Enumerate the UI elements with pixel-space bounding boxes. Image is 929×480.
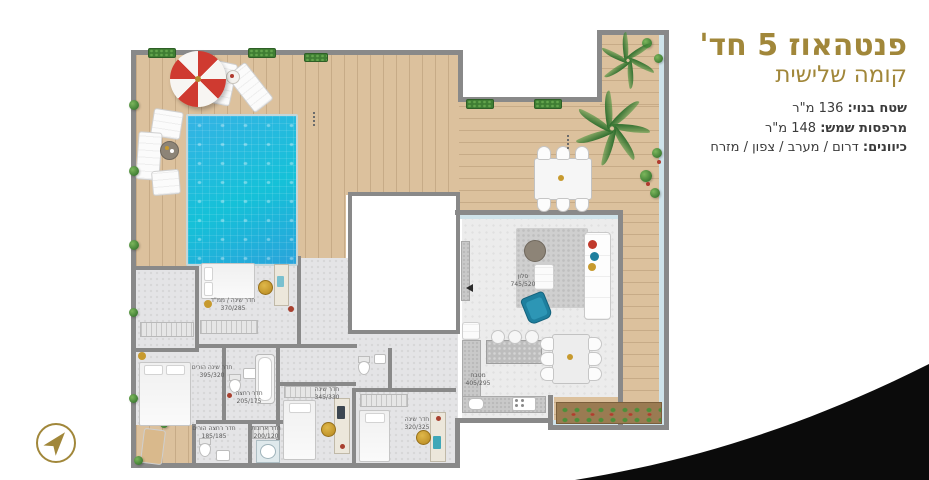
outdoor-chair (575, 146, 589, 160)
apartment-details: שטח בנוי: 136 מ"ר מרפסות שמש: 148 מ"ר כי… (699, 99, 907, 158)
outdoor-chair (556, 198, 570, 212)
throw-pillow (590, 252, 599, 261)
page: סלון745/520 מטבח405/295 חדר שינה / ממ"ד3… (0, 0, 929, 480)
page-title: פנטהאוז 5 חד' (699, 30, 907, 62)
room-label-bathroom: חדר רחצה205/175 (235, 390, 262, 406)
bar-stool (508, 330, 522, 344)
flower (646, 182, 650, 186)
wardrobe (360, 394, 408, 407)
bar-stool (491, 330, 505, 344)
bush (129, 394, 138, 403)
desk-chair (321, 422, 336, 437)
wall (597, 30, 669, 35)
bush (129, 240, 139, 250)
wall (455, 418, 553, 423)
single-bed (359, 410, 390, 462)
wall (196, 420, 296, 424)
bath-accent (227, 393, 232, 398)
flower (657, 160, 661, 164)
swimming-pool (186, 114, 298, 266)
bush (129, 100, 139, 110)
wall (455, 210, 623, 215)
stair-core (348, 192, 460, 334)
entrance-arrow (466, 284, 473, 292)
wall (131, 266, 197, 270)
kitchen-counter-left (462, 340, 481, 400)
header: פנטהאוז 5 חד' קומה שלישית שטח בנוי: 136 … (699, 30, 907, 158)
dimension-mark (567, 135, 569, 149)
page-subtitle: קומה שלישית (699, 62, 907, 90)
room-label-bedroom-3: חדר שינה345/330 (315, 386, 340, 402)
wall (131, 463, 460, 468)
fridge (462, 322, 480, 340)
room-label-living: סלון745/520 (511, 273, 536, 289)
burner (521, 399, 524, 402)
outdoor-chair (537, 146, 551, 160)
wall (297, 256, 301, 348)
computer-monitor (433, 436, 441, 449)
dimension-mark (313, 112, 315, 126)
throw-pillow (588, 263, 596, 271)
wall (352, 388, 356, 464)
bar-stool (525, 330, 539, 344)
centerpiece (558, 175, 564, 181)
wood-lounger (140, 428, 166, 465)
room-label-master-bathroom: חדר רחצה הורים185/185 (192, 425, 235, 441)
wall (131, 50, 463, 55)
dining-chair (588, 337, 602, 351)
table-item (170, 149, 174, 153)
dining-chair (540, 337, 554, 351)
bush (129, 308, 138, 317)
room-label-closet: חדר ארונות200/120 (251, 425, 281, 441)
outdoor-chair (575, 198, 589, 212)
wall (458, 50, 463, 102)
shower (256, 440, 280, 463)
table-item (230, 74, 234, 78)
table-item (165, 146, 169, 150)
bush (129, 166, 139, 176)
burner (521, 404, 524, 407)
bush (134, 456, 143, 465)
room-label-master-bedroom: חדר שינה הורים395/320 (192, 364, 233, 380)
wall (131, 50, 136, 468)
wardrobe (200, 320, 258, 334)
throw-pillow (588, 240, 597, 249)
living-window-band (460, 215, 618, 219)
bush (650, 188, 660, 198)
detail-balconies: מרפסות שמש: 148 מ"ר (699, 119, 907, 139)
hedge-planter (148, 48, 176, 58)
bush (640, 170, 652, 182)
parasol (170, 51, 226, 107)
wardrobe (140, 322, 194, 337)
desk-lamp (436, 416, 441, 421)
room-label-bedroom-4: חדר שינה320/325 (405, 416, 430, 432)
corner-swoosh (549, 360, 929, 480)
desk-chair (258, 280, 273, 295)
master-bed (139, 362, 191, 426)
hedge-planter (466, 99, 494, 109)
desk-lamp (340, 444, 345, 449)
outdoor-chair (537, 198, 551, 212)
pouf (138, 352, 146, 360)
bush (652, 148, 662, 158)
double-bed (201, 263, 255, 299)
room-label-mamad: חדר שינה / ממ"ד370/285 (211, 297, 255, 313)
tv-unit (461, 241, 470, 301)
wall (455, 418, 460, 468)
detail-built-area: שטח בנוי: 136 מ"ר (699, 99, 907, 119)
wall (222, 348, 226, 423)
bush (654, 54, 663, 63)
lounge-chair (151, 169, 181, 196)
wall (352, 388, 456, 392)
hedge-planter (248, 48, 276, 58)
desk-chair (416, 430, 431, 445)
laptop (277, 276, 284, 287)
burner (515, 399, 518, 402)
computer-monitor (337, 406, 345, 419)
burner (515, 404, 518, 407)
room-label-kitchen: מטבח405/295 (466, 372, 491, 388)
bathroom-sink (216, 450, 230, 461)
hedge-planter (534, 99, 562, 109)
coffee-table (524, 240, 546, 262)
compass-icon (33, 420, 79, 466)
kitchen-sink (468, 398, 484, 410)
detail-directions: כיוונים: דרום / מערב / צפון / מזרח (699, 138, 907, 158)
wall (388, 348, 392, 390)
ottoman (534, 264, 554, 290)
bathroom-sink (374, 354, 386, 364)
wall (597, 30, 602, 102)
single-bed (283, 400, 316, 460)
floor-lamp (288, 306, 294, 312)
hedge-planter (304, 53, 328, 62)
